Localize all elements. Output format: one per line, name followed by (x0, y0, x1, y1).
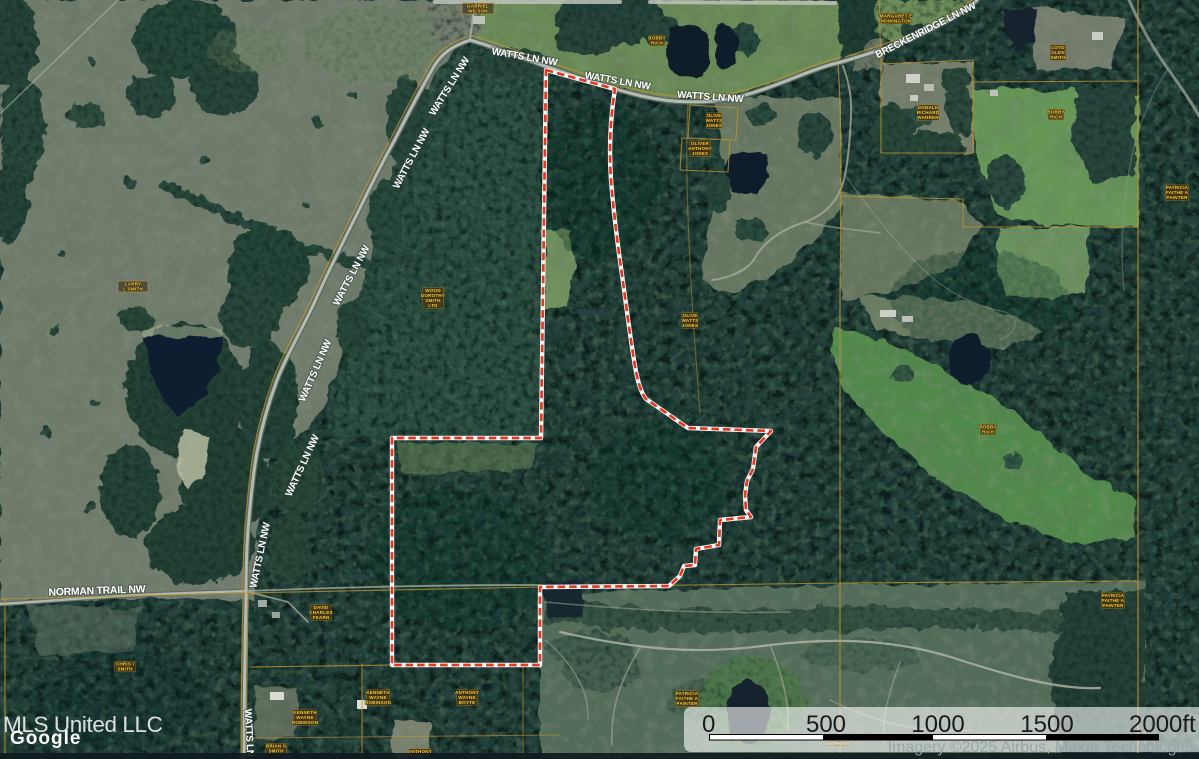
svg-text:ROBINSON: ROBINSON (365, 700, 392, 705)
svg-text:ROBINSON: ROBINSON (292, 720, 319, 725)
svg-text:2000ft: 2000ft (1129, 711, 1196, 738)
svg-text:BOYTE: BOYTE (459, 700, 476, 705)
svg-text:0: 0 (702, 711, 715, 738)
svg-text:RICH: RICH (982, 430, 995, 435)
svg-text:PAINTER: PAINTER (1102, 603, 1124, 608)
svg-text:PAINTER: PAINTER (1166, 195, 1188, 200)
svg-text:FEARN: FEARN (313, 615, 330, 620)
svg-text:JONES: JONES (692, 151, 709, 156)
svg-text:Google: Google (10, 728, 81, 749)
svg-text:SMITH: SMITH (1050, 55, 1066, 60)
svg-text:L SMITH: L SMITH (123, 287, 143, 292)
svg-text:SMITH: SMITH (268, 749, 284, 754)
svg-text:JONES: JONES (706, 123, 723, 128)
svg-text:PAINTER: PAINTER (676, 701, 698, 706)
svg-text:RICH: RICH (1050, 115, 1063, 120)
svg-text:SMITH: SMITH (117, 667, 133, 672)
svg-text:JONES: JONES (682, 323, 699, 328)
svg-text:RICH: RICH (651, 41, 664, 46)
svg-text:Imagery ©2025 Airbus, Maxar Te: Imagery ©2025 Airbus, Maxar Technologies (888, 739, 1197, 756)
svg-text:HOWINGTON: HOWINGTON (881, 19, 912, 24)
svg-text:500: 500 (806, 711, 846, 738)
svg-text:1000: 1000 (911, 711, 964, 738)
svg-text:LTD: LTD (428, 303, 438, 308)
svg-text:WARREN: WARREN (917, 115, 939, 120)
svg-text:1500: 1500 (1020, 711, 1073, 738)
svg-text:WILSON: WILSON (468, 9, 488, 14)
